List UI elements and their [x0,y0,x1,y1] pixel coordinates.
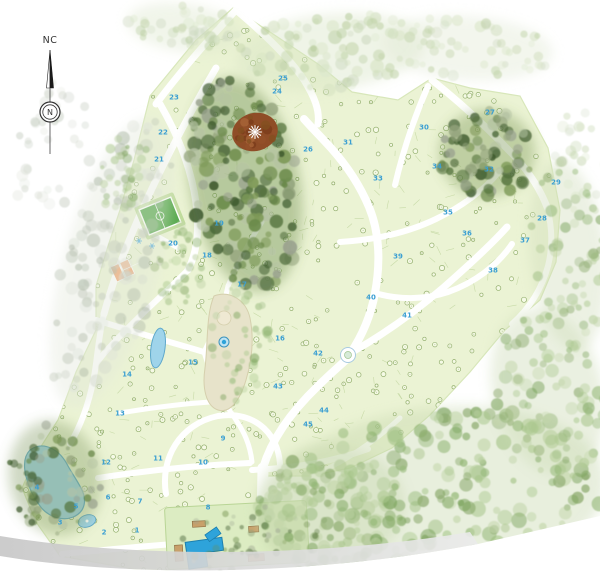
block-number-8: 8 [206,504,211,512]
master-plan-canvas: 1234567891011121314151617181920212223242… [0,0,600,585]
block-number-15: 15 [188,359,198,367]
block-number-16: 16 [275,335,285,343]
block-number-18: 18 [202,252,212,260]
compass-north-label: N [47,108,53,117]
block-number-20: 20 [168,240,178,248]
block-number-6: 6 [106,494,111,502]
roundabout [341,348,356,363]
block-number-13: 13 [115,410,125,418]
block-number-28: 28 [537,215,547,223]
block-number-29: 29 [551,179,561,187]
block-number-31: 31 [343,139,353,147]
block-number-25: 25 [278,75,288,83]
block-number-23: 23 [169,94,179,102]
compass-ring: N [40,102,60,122]
block-number-37: 37 [520,237,530,245]
site-plan-map: 1234567891011121314151617181920212223242… [0,0,600,585]
block-number-4: 4 [35,484,40,492]
block-number-17: 17 [237,281,247,289]
block-number-5: 5 [74,503,79,511]
block-number-45: 45 [303,421,313,429]
block-number-27: 27 [485,109,495,117]
block-number-43: 43 [273,383,283,391]
block-number-26: 26 [303,146,313,154]
park-fountain-icon [219,337,229,347]
block-number-2: 2 [102,529,107,537]
block-number-19: 19 [214,220,224,228]
block-number-36: 36 [462,230,472,238]
block-number-30: 30 [419,124,429,132]
block-number-33: 33 [373,175,383,183]
block-number-22: 22 [158,129,168,137]
compass: NC N [30,30,70,160]
block-number-42: 42 [313,350,323,358]
block-number-34: 34 [432,163,442,171]
block-number-38: 38 [488,267,498,275]
block-number-3: 3 [58,519,63,527]
block-number-10: 10 [198,459,208,467]
block-number-40: 40 [366,294,376,302]
block-number-24: 24 [272,88,282,96]
block-number-41: 41 [402,312,412,320]
block-number-39: 39 [393,253,403,261]
block-number-7: 7 [138,498,143,506]
block-number-21: 21 [154,156,164,164]
block-number-32: 32 [484,166,494,174]
block-number-11: 11 [153,455,163,463]
compass-nc-label: NC [43,35,58,46]
block-number-35: 35 [443,209,453,217]
block-number-12: 12 [101,459,111,467]
block-number-14: 14 [122,371,132,379]
block-number-9: 9 [221,435,226,443]
block-number-1: 1 [135,527,140,535]
block-number-44: 44 [319,407,329,415]
